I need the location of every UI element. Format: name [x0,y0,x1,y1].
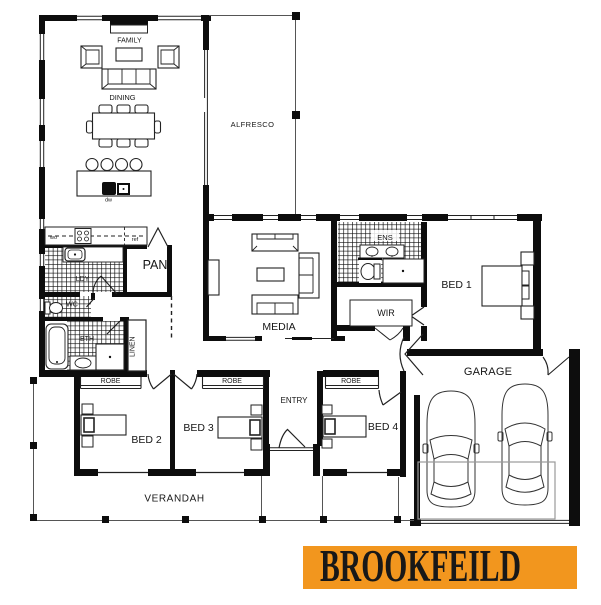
svg-text:ENTRY: ENTRY [281,396,309,405]
svg-text:BED 3: BED 3 [183,422,214,434]
svg-text:ROBE: ROBE [341,378,361,385]
svg-text:ALFRESCO: ALFRESCO [231,120,275,129]
svg-text:wo: wo [49,235,57,241]
svg-text:BED 1: BED 1 [441,279,472,291]
svg-text:BTH: BTH [80,336,94,343]
svg-text:LDY: LDY [76,276,90,283]
svg-text:VERANDAH: VERANDAH [144,494,204,505]
svg-text:ROBE: ROBE [101,378,121,385]
svg-text:dw: dw [105,198,112,204]
svg-text:MEDIA: MEDIA [262,321,295,333]
svg-text:ENS: ENS [377,233,392,242]
svg-text:PAN: PAN [143,258,168,272]
svg-text:ref: ref [132,237,139,243]
svg-text:BED 4: BED 4 [368,421,399,433]
svg-text:LINEN: LINEN [130,336,137,357]
svg-text:FAMILY: FAMILY [117,38,142,45]
svg-text:BED 2: BED 2 [131,434,162,446]
svg-text:BROOKFEILD: BROOKFEILD [320,541,521,591]
svg-text:ROBE: ROBE [222,378,242,385]
svg-text:WC: WC [66,302,78,309]
svg-text:GARAGE: GARAGE [464,366,512,378]
svg-text:WIR: WIR [377,308,395,318]
svg-text:DINING: DINING [109,93,135,102]
